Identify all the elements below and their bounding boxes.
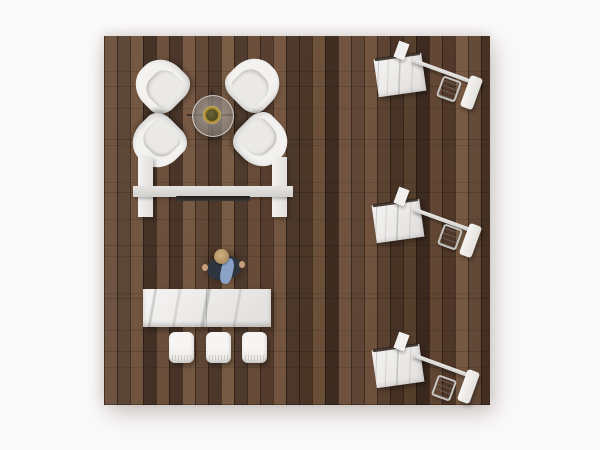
stool-center — [206, 332, 231, 363]
person-top-view — [200, 242, 248, 288]
stool-right — [242, 332, 267, 363]
person-head — [214, 249, 229, 264]
kiosk3-marble-counter — [372, 344, 425, 388]
marble-console-table — [143, 289, 271, 327]
planter-plant — [206, 109, 218, 121]
media-wall-screen — [176, 196, 250, 201]
stool-left — [169, 332, 194, 363]
kiosk2-marble-counter — [372, 199, 425, 243]
booth-render-scene — [0, 0, 600, 450]
person-hand-left — [202, 264, 208, 271]
person-hand-right — [239, 261, 245, 268]
